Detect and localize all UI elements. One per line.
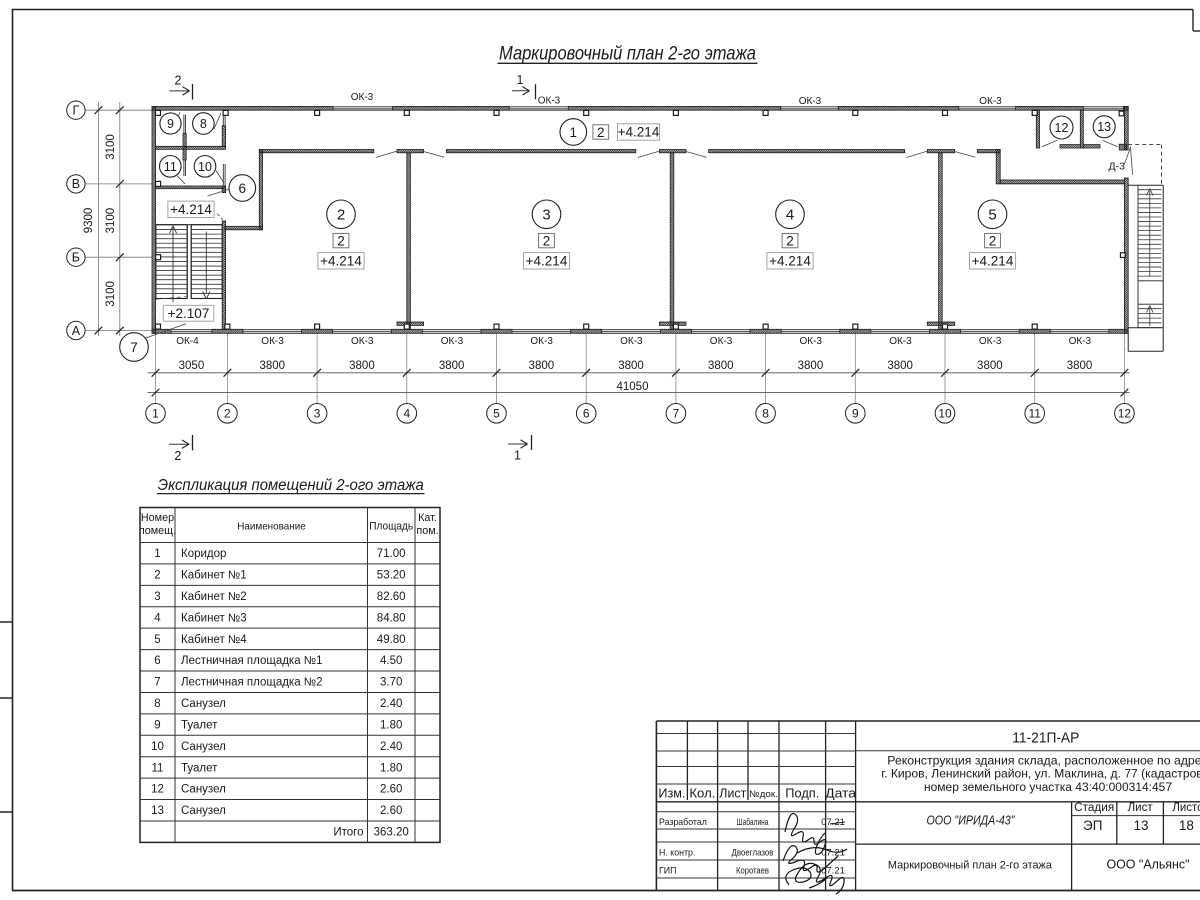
svg-text:Лист: Лист [719,786,746,801]
svg-text:Итого: Итого [333,827,363,839]
svg-text:6: 6 [154,655,160,667]
svg-text:3800: 3800 [439,360,465,372]
svg-text:+4.214: +4.214 [526,254,568,269]
svg-text:12: 12 [151,784,164,796]
svg-text:Лестничная площадка №1: Лестничная площадка №1 [181,655,323,667]
svg-text:Б: Б [72,251,80,265]
svg-text:11: 11 [164,160,177,174]
svg-text:г. Киров, Ленинский район, ул.: г. Киров, Ленинский район, ул. Маклина, … [881,767,1200,781]
svg-text:3800: 3800 [349,360,375,372]
svg-text:3: 3 [542,207,550,224]
svg-text:+4.214: +4.214 [618,125,660,140]
svg-text:Туалет: Туалет [181,762,218,774]
svg-text:3.70: 3.70 [380,677,402,689]
svg-text:Маркировочный план 2-го этажа: Маркировочный план 2-го этажа [499,44,756,65]
svg-text:3800: 3800 [529,360,555,372]
svg-text:ООО "ИРИДА-43": ООО "ИРИДА-43" [927,813,1015,827]
svg-text:Стадия: Стадия [1074,802,1114,814]
svg-text:1: 1 [152,407,159,421]
svg-text:2: 2 [154,569,160,581]
svg-text:+4.214: +4.214 [170,202,212,217]
svg-text:Экспликация помещений 2-ого эт: Экспликация помещений 2-ого этажа [158,477,424,494]
svg-text:3800: 3800 [798,360,824,372]
svg-text:84.80: 84.80 [377,612,406,624]
svg-text:3800: 3800 [887,360,913,372]
svg-text:5: 5 [493,407,500,421]
svg-text:Санузел: Санузел [181,805,226,817]
svg-text:2: 2 [174,449,181,463]
svg-text:13: 13 [1133,818,1148,833]
svg-text:71.00: 71.00 [377,548,406,560]
svg-text:ОК-3: ОК-3 [351,92,374,103]
svg-text:Номер: Номер [141,512,174,524]
svg-text:Реконструкция здания склада, р: Реконструкция здания склада, расположенн… [887,754,1200,768]
svg-text:Лист: Лист [1128,802,1154,814]
svg-text:3800: 3800 [1067,360,1093,372]
svg-text:ОК-3: ОК-3 [1069,336,1092,347]
svg-text:3100: 3100 [105,208,117,234]
svg-text:ОК-3: ОК-3 [800,336,823,347]
svg-text:1: 1 [570,125,578,140]
svg-text:3800: 3800 [618,360,644,372]
svg-text:3100: 3100 [105,281,117,307]
svg-text:Кабинет №1: Кабинет №1 [181,569,247,581]
svg-text:В: В [72,177,80,191]
svg-text:7: 7 [673,407,680,421]
svg-text:10: 10 [938,407,952,421]
svg-text:2.40: 2.40 [380,741,402,753]
svg-text:3: 3 [154,591,160,603]
svg-text:49.80: 49.80 [377,634,406,646]
svg-text:11: 11 [1028,407,1041,421]
svg-text:7: 7 [130,340,138,355]
svg-text:ЭП: ЭП [1083,818,1102,833]
svg-text:№док.: №док. [749,789,778,800]
svg-text:Кабинет №4: Кабинет №4 [181,634,247,646]
svg-text:1.80: 1.80 [380,762,402,774]
svg-text:Кол.: Кол. [689,786,715,801]
svg-text:2: 2 [786,233,794,248]
svg-text:Подп.: Подп. [785,786,819,801]
svg-text:+4.214: +4.214 [972,254,1014,269]
svg-text:13: 13 [151,805,164,817]
svg-text:2: 2 [337,207,345,224]
svg-text:Кабинет №3: Кабинет №3 [181,612,247,624]
svg-text:1: 1 [517,73,524,87]
svg-text:помещ.: помещ. [139,525,176,537]
svg-text:Наименование: Наименование [237,521,306,533]
svg-text:12: 12 [1055,121,1069,135]
svg-text:1: 1 [154,548,160,560]
svg-text:363.20: 363.20 [374,827,409,839]
svg-text:8: 8 [762,407,769,421]
svg-text:+4.214: +4.214 [320,254,362,269]
svg-text:07.21: 07.21 [821,866,845,877]
svg-text:Д-3: Д-3 [1108,161,1125,173]
svg-text:ОК-3: ОК-3 [620,336,643,347]
svg-text:12: 12 [1118,407,1132,421]
svg-text:2.60: 2.60 [380,784,402,796]
svg-text:82.60: 82.60 [377,591,406,603]
svg-text:ОК-3: ОК-3 [799,96,822,107]
svg-text:6: 6 [583,407,590,421]
svg-text:11-21П-АР: 11-21П-АР [1012,731,1079,747]
svg-text:4.50: 4.50 [380,655,402,667]
svg-text:ОК-3: ОК-3 [351,336,374,347]
svg-text:Г: Г [73,104,80,118]
svg-text:2: 2 [989,233,997,248]
svg-text:ОК-3: ОК-3 [710,336,733,347]
svg-text:5: 5 [988,207,996,224]
svg-text:ОК-3: ОК-3 [530,336,553,347]
svg-text:Двоеглазов: Двоеглазов [732,848,774,859]
svg-text:Коридор: Коридор [181,548,226,560]
svg-text:ОК-3: ОК-3 [441,336,464,347]
svg-text:Санузел: Санузел [181,741,226,753]
svg-text:3800: 3800 [977,360,1003,372]
svg-text:Кабинет №2: Кабинет №2 [181,591,247,603]
svg-text:+4.214: +4.214 [769,254,811,269]
svg-text:3800: 3800 [259,360,285,372]
svg-text:ГИП: ГИП [659,866,676,876]
svg-text:9300: 9300 [83,208,95,234]
svg-text:Коротаев: Коротаев [736,866,769,877]
svg-text:Н. контр.: Н. контр. [659,848,695,858]
svg-text:Лестничная площадка №2: Лестничная площадка №2 [181,677,323,689]
svg-text:9: 9 [167,117,174,131]
svg-text:Санузел: Санузел [181,784,226,796]
svg-text:8: 8 [154,698,160,710]
svg-text:1.80: 1.80 [380,719,402,731]
svg-text:8: 8 [200,117,207,131]
svg-text:3: 3 [314,407,321,421]
svg-text:1: 1 [514,449,521,463]
svg-text:10: 10 [198,160,212,174]
svg-text:9: 9 [154,719,160,731]
svg-text:Шабалина: Шабалина [737,817,769,828]
svg-text:41050: 41050 [617,381,649,393]
svg-text:7: 7 [154,677,160,689]
svg-text:11: 11 [152,762,164,774]
svg-text:4: 4 [154,612,161,624]
svg-text:ОК-3: ОК-3 [979,96,1002,107]
svg-text:ООО "Альянс": ООО "Альянс" [1107,856,1190,871]
svg-text:2: 2 [337,233,345,248]
svg-text:3100: 3100 [105,134,117,160]
svg-text:ОК-4: ОК-4 [176,336,199,347]
svg-text:2: 2 [543,233,551,248]
svg-text:ОК-3: ОК-3 [261,336,284,347]
svg-text:4: 4 [786,207,794,224]
svg-text:6: 6 [239,181,247,196]
svg-text:Листов: Листов [1172,802,1200,814]
svg-text:2: 2 [224,407,231,421]
svg-text:ОК-3: ОК-3 [889,336,912,347]
svg-text:Площадь: Площадь [369,521,413,533]
svg-text:9: 9 [852,407,859,421]
svg-text:Дата: Дата [825,786,857,801]
svg-text:3050: 3050 [179,360,205,372]
svg-text:Туалет: Туалет [181,719,218,731]
svg-text:4: 4 [403,407,410,421]
svg-text:номер земельного участка 43:40: номер земельного участка 43:40:000314:45… [924,780,1172,794]
svg-text:А: А [72,324,81,338]
svg-text:2.40: 2.40 [380,698,402,710]
svg-text:53.20: 53.20 [377,569,406,581]
svg-text:2.60: 2.60 [380,805,402,817]
svg-text:5: 5 [154,634,160,646]
svg-text:2: 2 [597,125,605,140]
svg-text:Изм.: Изм. [658,786,685,801]
svg-text:ОК-3: ОК-3 [538,96,561,107]
svg-text:Разработал: Разработал [659,817,707,827]
svg-text:пом.: пом. [416,525,438,537]
svg-text:Кат.: Кат. [418,512,437,524]
svg-text:2: 2 [175,74,182,88]
svg-text:10: 10 [151,741,164,753]
svg-text:ОК-3: ОК-3 [979,336,1002,347]
svg-text:Санузел: Санузел [181,698,226,710]
svg-text:Маркировочный план 2-го этажа: Маркировочный план 2-го этажа [888,859,1052,871]
svg-text:18: 18 [1179,818,1194,833]
svg-text:+2.107: +2.107 [168,306,210,321]
svg-text:3800: 3800 [708,360,734,372]
svg-text:13: 13 [1097,120,1111,134]
